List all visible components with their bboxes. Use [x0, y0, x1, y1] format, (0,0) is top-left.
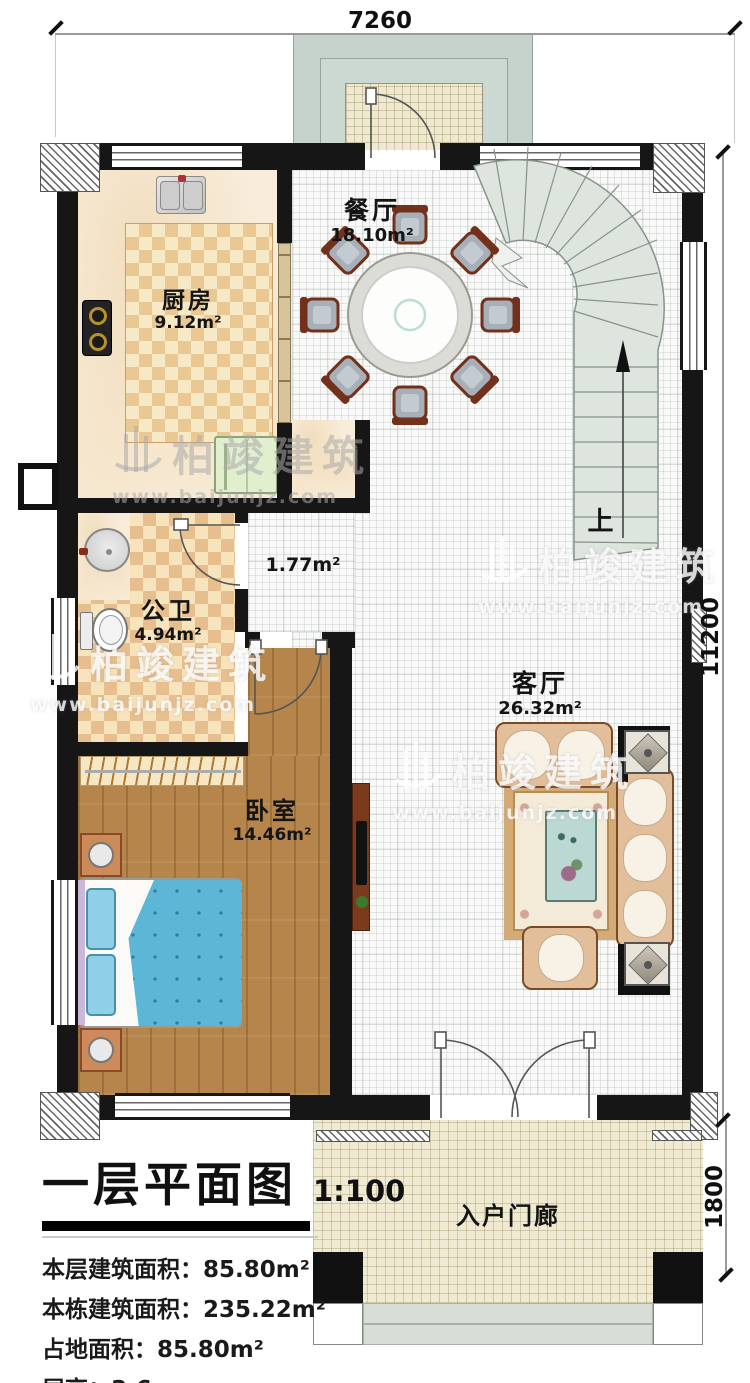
stat-row: 本栋建筑面积：235.22m²: [42, 1290, 405, 1330]
sofa-top: [495, 722, 613, 788]
stat-value: 3.6m: [111, 1377, 176, 1383]
room-name: 厨房: [128, 288, 248, 314]
wardrobe: [80, 756, 244, 786]
dining-top-window: [480, 143, 640, 170]
back-porch-floor: [345, 83, 483, 152]
room-area: 26.32m²: [480, 699, 600, 720]
bed: [80, 878, 242, 1028]
room-area: 9.12m²: [128, 314, 248, 334]
label-dining: 餐厅 18.10m²: [312, 197, 432, 246]
label-porch: 入户门廊: [428, 1203, 588, 1231]
dim-porch-value: 1800: [702, 1162, 728, 1232]
wall-bath-bedroom: [57, 742, 248, 756]
stat-label: 本层建筑面积：: [42, 1257, 203, 1283]
label-bedroom: 卧室 14.46m²: [212, 798, 332, 845]
stove: [82, 300, 112, 356]
label-hall-area: 1.77m²: [248, 555, 358, 577]
room-area: 1.77m²: [248, 555, 358, 577]
porch-pad-right: [653, 1303, 703, 1345]
sofa-cushion: [623, 778, 667, 826]
porch-column-right: [653, 1252, 703, 1303]
bathroom-sink: [84, 528, 130, 572]
stats-list: 本层建筑面积：85.80m² 本栋建筑面积：235.22m² 占地面积：85.8…: [42, 1250, 405, 1383]
porch-step-2: [363, 1324, 653, 1345]
kitchen-window: [112, 143, 242, 170]
porch-step-1: [363, 1303, 653, 1324]
sink-drain: [106, 549, 112, 555]
dim-tick: [727, 20, 743, 36]
plant-center: [644, 961, 652, 969]
wall-kitchen-dining: [277, 170, 292, 243]
stat-value: 235.22m²: [203, 1297, 326, 1323]
pillow-1: [86, 888, 116, 950]
nightstand-bottom: [80, 1028, 122, 1072]
sink-basin-right: [183, 181, 203, 210]
fridge-handle: [224, 444, 227, 490]
wall: [242, 143, 365, 170]
burner-1: [89, 307, 107, 325]
porch-sill-hatch-left: [316, 1130, 430, 1142]
room-name: 公卫: [108, 598, 228, 626]
plant-small: [356, 896, 368, 908]
wall-dining-stub: [355, 420, 370, 498]
plant-center: [644, 749, 652, 757]
tv-cabinet: [352, 783, 370, 931]
wall-bath-right: [235, 589, 248, 632]
room-name: 客厅: [480, 670, 600, 699]
coffee-table: [545, 810, 597, 902]
side-table-top: [624, 730, 670, 774]
room-area: 14.46m²: [212, 826, 332, 846]
floor-plan: 餐厅 18.10m² 厨房 9.12m² 公卫 4.94m² 1.77m² 卧室…: [0, 0, 750, 1383]
stat-row: 本层建筑面积：85.80m²: [42, 1250, 405, 1290]
side-table-bottom: [624, 942, 670, 986]
wall-bedroom-living: [330, 648, 352, 1095]
stat-row: 占地面积：85.80m²: [42, 1330, 405, 1370]
wall: [57, 143, 78, 598]
sofa-cushion: [623, 890, 667, 938]
kitchen-alcove-floor: [292, 420, 355, 498]
bathroom-window: [51, 598, 78, 685]
stat-label: 占地面积：: [42, 1337, 157, 1363]
dim-guide: [55, 33, 56, 137]
bedroom-bottom-window: [115, 1093, 290, 1120]
armchair: [522, 926, 598, 990]
bedroom-curtain: [78, 880, 85, 1025]
sink-faucet: [178, 175, 186, 182]
corner-hatch-bottom-left: [40, 1092, 100, 1140]
nightstand-top: [80, 833, 122, 877]
wall: [57, 685, 78, 880]
tv: [356, 821, 367, 885]
door-gap-top: [365, 150, 440, 170]
pillow-2: [86, 954, 116, 1016]
bedroom-entry-floor: [248, 648, 330, 756]
lamp: [88, 842, 114, 868]
bedroom-side-window: [51, 880, 78, 1025]
wall-kitchen-bottom: [57, 498, 370, 513]
porch-sill-hatch-right: [652, 1130, 702, 1141]
wall: [290, 1095, 430, 1120]
sofa-right: [616, 768, 674, 948]
dim-guide: [734, 33, 735, 143]
sofa-cushion: [623, 834, 667, 882]
sink-tap: [79, 548, 88, 555]
wall: [682, 370, 703, 1120]
door-gap-entrance: [430, 1097, 597, 1118]
room-name: 餐厅: [312, 197, 432, 226]
sink-basin-left: [160, 181, 180, 210]
corner-hatch-top-right: [653, 143, 705, 193]
wall-kitchen-dining: [277, 423, 292, 498]
stair-window: [680, 242, 707, 370]
stat-value: 85.80m²: [157, 1337, 264, 1363]
kitchen-sink: [156, 176, 206, 214]
label-bath: 公卫 4.94m²: [108, 598, 228, 645]
room-area: 18.10m²: [312, 226, 432, 247]
burner-2: [89, 333, 107, 351]
stat-label: 本栋建筑面积：: [42, 1297, 203, 1323]
room-name: 卧室: [212, 798, 332, 826]
wall-hall-bottom: [322, 632, 355, 648]
room-area: 4.94m²: [108, 626, 228, 646]
wardrobe-rod: [85, 770, 241, 773]
fridge-divider: [246, 440, 248, 492]
plan-scale: 1:100: [313, 1174, 405, 1208]
up-text: 上: [584, 508, 620, 538]
wall-bath-right: [235, 513, 248, 523]
wall-hall-bottom: [245, 632, 260, 648]
stat-value: 85.80m²: [203, 1257, 310, 1283]
fridge: [214, 436, 278, 494]
stat-row: 层高：3.6m: [42, 1370, 405, 1383]
label-kitchen: 厨房 9.12m²: [128, 288, 248, 334]
dim-right-value: 11200: [698, 592, 724, 682]
room-name: 入户门廊: [428, 1203, 588, 1231]
dim-top-value: 7260: [348, 8, 408, 34]
flue-box-left: [18, 463, 58, 510]
stat-label: 层高：: [42, 1377, 111, 1383]
armchair-cushion: [538, 934, 584, 982]
sofa-cushion: [503, 730, 551, 780]
sofa-cushion: [557, 730, 605, 780]
lamp: [88, 1037, 114, 1063]
title-rule: [42, 1221, 310, 1231]
wall: [440, 143, 480, 170]
title-rule-thin: [42, 1236, 318, 1238]
plan-title: 一层平面图: [42, 1146, 297, 1215]
wall: [682, 193, 703, 242]
title-block: 一层平面图 1:100 本层建筑面积：85.80m² 本栋建筑面积：235.22…: [42, 1146, 405, 1383]
label-living: 客厅 26.32m²: [480, 670, 600, 719]
stairs-up-label: 上: [584, 508, 620, 538]
kitchen-slider: [278, 243, 291, 423]
corner-hatch-top-left: [40, 143, 100, 192]
